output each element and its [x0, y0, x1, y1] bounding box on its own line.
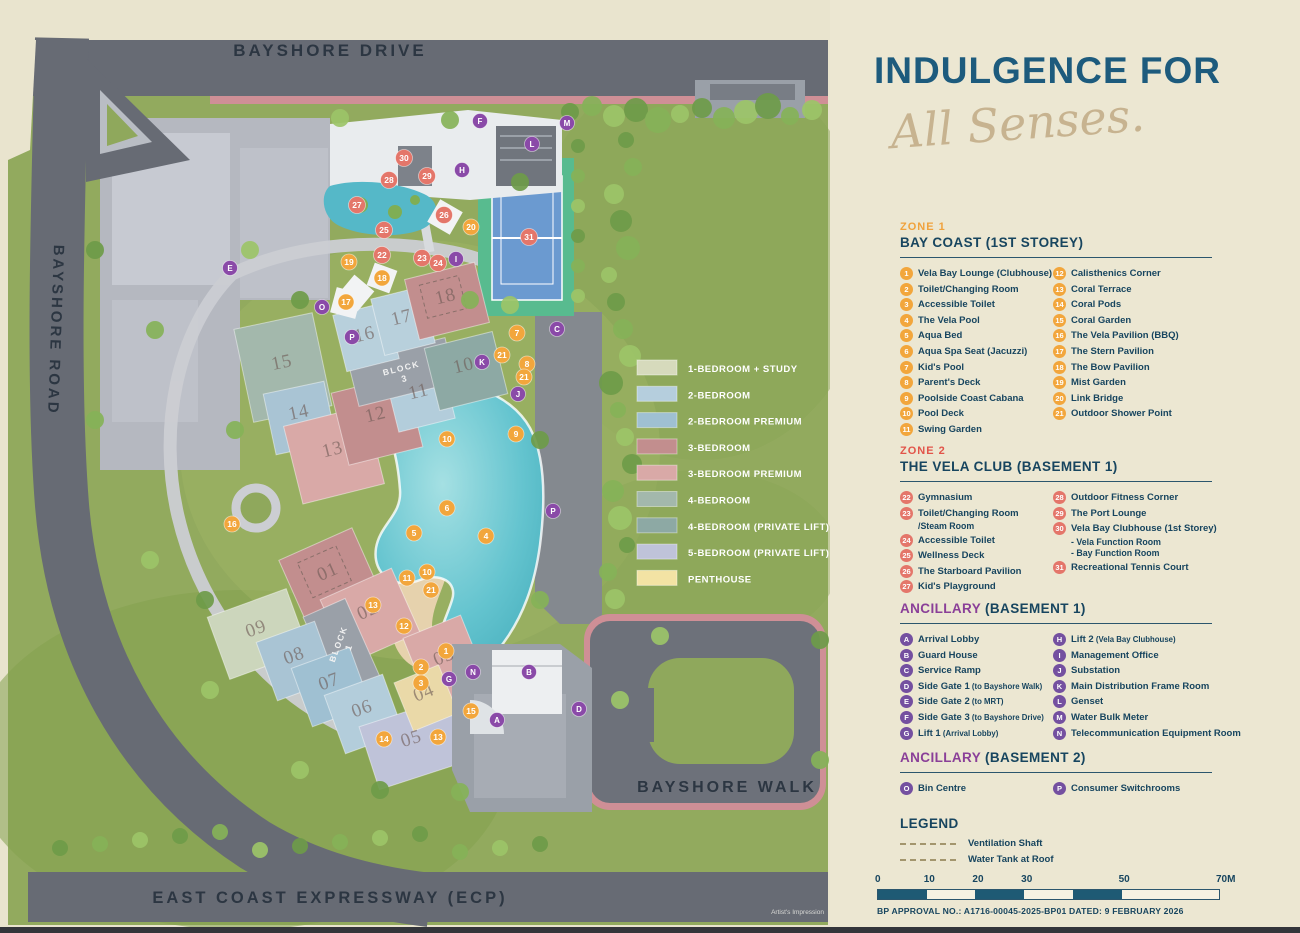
marker-badge: J — [1053, 664, 1066, 677]
legend-item-4: 4The Vela Pool — [900, 315, 1053, 327]
dashed-line-swatch — [900, 859, 956, 861]
item-label: Aqua Bed — [918, 330, 962, 341]
marker-badge: K — [1053, 680, 1066, 693]
svg-text:22: 22 — [377, 250, 387, 260]
map-marker-ancillary-I: I — [449, 252, 464, 267]
map-marker-zone1-12: 12 — [396, 618, 412, 634]
svg-text:21: 21 — [426, 585, 436, 595]
scale-tick-70M: 70M — [1216, 874, 1235, 885]
legend-item-A: AArrival Lobby — [900, 634, 1053, 646]
svg-text:14: 14 — [379, 734, 389, 744]
marker-badge: 20 — [1053, 392, 1066, 405]
item-label: Vela Bay Lounge (Clubhouse) — [918, 268, 1052, 279]
marker-badge: 15 — [1053, 314, 1066, 327]
legend-item-K: KMain Distribution Frame Room — [1053, 681, 1296, 693]
marker-badge: P — [1053, 782, 1066, 795]
site-plan-map: 1-BEDROOM + STUDY2-BEDROOM2-BEDROOM PREM… — [0, 0, 830, 933]
unit-color-swatch — [637, 386, 677, 401]
service-road — [535, 312, 602, 624]
svg-text:12: 12 — [399, 621, 409, 631]
unit-color-swatch — [637, 439, 677, 454]
svg-text:H: H — [459, 166, 465, 175]
legend-row-label: Water Tank at Roof — [968, 854, 1054, 865]
unit-legend-label: 4-BEDROOM — [688, 496, 751, 507]
map-marker-ancillary-J: J — [511, 387, 526, 402]
item-label: The Vela Pool — [918, 315, 980, 326]
unit-color-swatch — [637, 413, 677, 428]
map-marker-zone1-10: 10 — [419, 564, 435, 580]
section-col2: 28Outdoor Fitness Corner29The Port Loung… — [1053, 492, 1296, 597]
item-label: Outdoor Shower Point — [1071, 408, 1172, 419]
legend-row: Water Tank at Roof — [900, 854, 1300, 865]
map-marker-ancillary-A: A — [490, 713, 505, 728]
marker-badge: A — [900, 633, 913, 646]
item-label: Consumer Switchrooms — [1071, 783, 1180, 794]
item-label: Parent's Deck — [918, 377, 980, 388]
marker-badge: 13 — [1053, 283, 1066, 296]
svg-text:13: 13 — [368, 600, 378, 610]
section-col2: PConsumer Switchrooms — [1053, 783, 1296, 799]
svg-text:3: 3 — [419, 678, 424, 688]
map-marker-ancillary-D: D — [572, 702, 587, 717]
scale-bar-block: 01020305070M BP APPROVAL NO.: A1716-0004… — [877, 874, 1297, 916]
item-label: Coral Pods — [1071, 299, 1121, 310]
legend-item-7: 7Kid's Pool — [900, 362, 1053, 374]
screenshot-edge-strip — [0, 927, 1300, 933]
svg-text:7: 7 — [515, 328, 520, 338]
item-label: Accessible Toilet — [918, 535, 995, 546]
legend-item-19: 19Mist Garden — [1053, 377, 1296, 389]
section-title: THE VELA CLUB (BASEMENT 1) — [900, 459, 1300, 474]
item-subline: - Bay Function Room — [1071, 548, 1296, 559]
marker-badge: 28 — [1053, 491, 1066, 504]
legend-item-21: 21Outdoor Shower Point — [1053, 408, 1296, 420]
map-marker-ancillary-F: F — [473, 114, 488, 129]
marker-badge: M — [1053, 711, 1066, 724]
svg-text:30: 30 — [399, 153, 409, 163]
svg-text:21: 21 — [519, 372, 529, 382]
section-col2: HLift 2 (Vela Bay Clubhouse)IManagement … — [1053, 634, 1296, 743]
map-marker-zone1-16: 16 — [224, 516, 240, 532]
legend-item-20: 20Link Bridge — [1053, 393, 1296, 405]
marker-badge: O — [900, 782, 913, 795]
item-subline: /Steam Room — [918, 521, 1053, 532]
svg-text:J: J — [516, 390, 520, 399]
map-marker-zone1-20: 20 — [463, 219, 479, 235]
scale-segment — [878, 890, 927, 899]
roundabout — [236, 488, 276, 528]
marker-badge: 4 — [900, 314, 913, 327]
site-plan-illustration: 1-BEDROOM + STUDY2-BEDROOM2-BEDROOM PREM… — [0, 0, 830, 933]
map-marker-zone2-27: 27 — [349, 197, 366, 214]
item-label: Link Bridge — [1071, 393, 1123, 404]
section-title: ANCILLARY (BASEMENT 2) — [900, 750, 1300, 765]
section-col1: 22Gymnasium23Toilet/Changing Room/Steam … — [900, 492, 1053, 597]
svg-text:P: P — [349, 333, 355, 342]
svg-text:M: M — [564, 119, 571, 128]
item-label: Side Gate 1 (to Bayshore Walk) — [918, 681, 1042, 692]
map-marker-zone1-1: 1 — [438, 643, 454, 659]
svg-text:24: 24 — [433, 258, 443, 268]
svg-text:17: 17 — [341, 297, 351, 307]
svg-text:11: 11 — [403, 573, 412, 583]
item-label: Coral Terrace — [1071, 284, 1132, 295]
marker-badge: 6 — [900, 345, 913, 358]
legend-item-18: 18The Bow Pavilion — [1053, 362, 1296, 374]
marker-badge: 16 — [1053, 329, 1066, 342]
legend-item-G: GLift 1 (Arrival Lobby) — [900, 728, 1053, 740]
svg-text:29: 29 — [422, 171, 432, 181]
item-label: Outdoor Fitness Corner — [1071, 492, 1178, 503]
section-title: ANCILLARY (BASEMENT 1) — [900, 601, 1300, 616]
item-label: Toilet/Changing Room — [918, 508, 1019, 519]
scale-segment — [975, 890, 1024, 899]
map-marker-zone2-29: 29 — [419, 168, 436, 185]
legend-item-6: 6Aqua Spa Seat (Jacuzzi) — [900, 346, 1053, 358]
map-marker-ancillary-N: N — [466, 665, 481, 680]
section-rule — [900, 481, 1212, 482]
marker-badge: 23 — [900, 507, 913, 520]
svg-text:I: I — [455, 255, 457, 264]
legend-item-F: FSide Gate 3 (to Bayshore Drive) — [900, 712, 1053, 724]
svg-text:5: 5 — [412, 528, 417, 538]
svg-text:21: 21 — [497, 350, 507, 360]
svg-text:D: D — [576, 705, 582, 714]
unit-color-swatch — [637, 544, 677, 559]
map-marker-zone1-13: 13 — [430, 729, 446, 745]
legend-item-28: 28Outdoor Fitness Corner — [1053, 492, 1296, 504]
legend-item-10: 10Pool Deck — [900, 408, 1053, 420]
item-label: Swing Garden — [918, 424, 982, 435]
svg-text:25: 25 — [379, 225, 389, 235]
svg-text:4: 4 — [484, 531, 489, 541]
item-label: Accessible Toilet — [918, 299, 995, 310]
marker-badge: 24 — [900, 534, 913, 547]
map-marker-ancillary-P: P — [546, 504, 561, 519]
item-label: Gymnasium — [918, 492, 972, 503]
marker-badge: F — [900, 711, 913, 724]
legend-item-J: JSubstation — [1053, 665, 1296, 677]
map-marker-zone1-4: 4 — [478, 528, 494, 544]
item-label: Bin Centre — [918, 783, 966, 794]
section-rule — [900, 257, 1212, 258]
legend-item-1: 1Vela Bay Lounge (Clubhouse) — [900, 268, 1053, 280]
item-label: Water Bulk Meter — [1071, 712, 1148, 723]
marker-badge: 17 — [1053, 345, 1066, 358]
marker-badge: 9 — [900, 392, 913, 405]
marker-badge: 25 — [900, 549, 913, 562]
map-marker-zone2-22: 22 — [374, 247, 391, 264]
marker-badge: 14 — [1053, 298, 1066, 311]
section-col1: 1Vela Bay Lounge (Clubhouse)2Toilet/Chan… — [900, 268, 1053, 440]
legend-item-D: DSide Gate 1 (to Bayshore Walk) — [900, 681, 1053, 693]
map-marker-zone1-6: 6 — [439, 500, 455, 516]
scale-segment — [1024, 890, 1073, 899]
map-marker-ancillary-O: O — [315, 300, 330, 315]
scale-segment — [1073, 890, 1122, 899]
legend-item-15: 15Coral Garden — [1053, 315, 1296, 327]
unit-number-14: 14 — [286, 400, 311, 425]
map-marker-ancillary-L: L — [525, 137, 540, 152]
legend-item-17: 17The Stern Pavilion — [1053, 346, 1296, 358]
map-marker-zone1-9: 9 — [508, 426, 524, 442]
legend-title: LEGEND — [900, 816, 1300, 831]
marker-badge: 19 — [1053, 376, 1066, 389]
road-label-bayshore-drive: BAYSHORE DRIVE — [233, 41, 426, 60]
unit-legend-label: 3-BEDROOM PREMIUM — [688, 469, 802, 480]
item-label: Wellness Deck — [918, 550, 984, 561]
item-label: Arrival Lobby — [918, 634, 979, 645]
section-tag: ZONE 1 — [900, 221, 1300, 233]
section-title: BAY COAST (1ST STOREY) — [900, 235, 1300, 250]
marker-badge: C — [900, 664, 913, 677]
section-tag: ZONE 2 — [900, 445, 1300, 457]
marker-badge: 31 — [1053, 561, 1066, 574]
scale-tick-10: 10 — [924, 874, 935, 885]
svg-text:27: 27 — [352, 200, 362, 210]
map-marker-ancillary-B: B — [522, 665, 537, 680]
unit-legend-label: 4-BEDROOM (PRIVATE LIFT) — [688, 522, 829, 533]
svg-text:6: 6 — [445, 503, 450, 513]
section-ancillary: ANCILLARY (BASEMENT 1)AArrival LobbyBGua… — [900, 599, 1300, 743]
map-marker-zone2-30: 30 — [396, 150, 413, 167]
item-label: Substation — [1071, 665, 1120, 676]
svg-text:15: 15 — [466, 706, 476, 716]
item-label: Kid's Playground — [918, 581, 996, 592]
svg-text:10: 10 — [442, 434, 452, 444]
svg-text:N: N — [470, 668, 476, 677]
legend-item-26: 26The Starboard Pavilion — [900, 566, 1053, 578]
legend-item-23: 23Toilet/Changing Room — [900, 508, 1053, 520]
map-marker-zone1-18: 18 — [374, 270, 390, 286]
legend-item-P: PConsumer Switchrooms — [1053, 783, 1296, 795]
unit-legend-label: 5-BEDROOM (PRIVATE LIFT) — [688, 548, 829, 559]
legend-item-L: LGenset — [1053, 696, 1296, 708]
item-label: Pool Deck — [918, 408, 964, 419]
legend-item-5: 5Aqua Bed — [900, 330, 1053, 342]
section-rule — [900, 772, 1212, 773]
unit-legend-label: 2-BEDROOM — [688, 390, 751, 401]
map-marker-ancillary-C: C — [550, 322, 565, 337]
svg-text:20: 20 — [466, 222, 476, 232]
scale-tick-20: 20 — [972, 874, 983, 885]
legend-item-B: BGuard House — [900, 650, 1053, 662]
map-marker-ancillary-G: G — [442, 672, 457, 687]
map-marker-zone2-28: 28 — [381, 172, 398, 189]
svg-text:K: K — [479, 358, 485, 367]
scale-bar — [877, 889, 1220, 900]
marker-badge: 3 — [900, 298, 913, 311]
svg-text:F: F — [478, 117, 483, 126]
svg-text:L: L — [530, 140, 535, 149]
map-marker-zone1-19: 19 — [341, 254, 357, 270]
marker-badge: 21 — [1053, 407, 1066, 420]
marker-badge: 22 — [900, 491, 913, 504]
legend-item-2: 2Toilet/Changing Room — [900, 284, 1053, 296]
item-label: Aqua Spa Seat (Jacuzzi) — [918, 346, 1027, 357]
item-label: Lift 2 (Vela Bay Clubhouse) — [1071, 634, 1176, 645]
marker-badge: 10 — [900, 407, 913, 420]
unit-legend-label: 1-BEDROOM + STUDY — [688, 364, 798, 375]
map-marker-zone1-5: 5 — [406, 525, 422, 541]
svg-text:23: 23 — [417, 253, 427, 263]
item-subline: - Vela Function Room — [1071, 537, 1296, 548]
item-label: Coral Garden — [1071, 315, 1131, 326]
marker-badge: E — [900, 695, 913, 708]
road-label-bayshore-walk: BAYSHORE WALK — [637, 779, 817, 796]
svg-text:9: 9 — [514, 429, 519, 439]
legend-item-16: 16The Vela Pavilion (BBQ) — [1053, 330, 1296, 342]
item-label: Telecommunication Equipment Room — [1071, 728, 1241, 739]
legend-item-3: 3Accessible Toilet — [900, 299, 1053, 311]
svg-text:8: 8 — [525, 359, 530, 369]
item-label: Lift 1 (Arrival Lobby) — [918, 728, 998, 739]
marker-badge: B — [900, 649, 913, 662]
map-marker-zone1-21: 21 — [516, 369, 532, 385]
map-marker-zone1-13: 13 — [365, 597, 381, 613]
legend-item-E: ESide Gate 2 (to MRT) — [900, 696, 1053, 708]
section-col2: 12Calisthenics Corner13Coral Terrace14Co… — [1053, 268, 1296, 440]
scale-labels: 01020305070M — [877, 874, 1297, 886]
section-zone-2: ZONE 2THE VELA CLUB (BASEMENT 1)22Gymnas… — [900, 445, 1300, 597]
unit-color-swatch — [637, 360, 677, 375]
legend-row-label: Ventilation Shaft — [968, 838, 1042, 849]
marker-badge: 18 — [1053, 361, 1066, 374]
unit-legend-label: 3-BEDROOM — [688, 443, 751, 454]
legend-item-C: CService Ramp — [900, 665, 1053, 677]
section-col1: OBin Centre — [900, 783, 1053, 799]
legend-panel: INDULGENCE FOR All Senses. ZONE 1BAY COA… — [830, 0, 1300, 933]
svg-text:E: E — [227, 264, 233, 273]
svg-text:10: 10 — [422, 567, 432, 577]
item-label: The Port Lounge — [1071, 508, 1146, 519]
unit-color-swatch — [637, 518, 677, 533]
item-label: Side Gate 3 (to Bayshore Drive) — [918, 712, 1044, 723]
legend-item-22: 22Gymnasium — [900, 492, 1053, 504]
legend-item-31: 31Recreational Tennis Court — [1053, 562, 1296, 574]
bp-approval-text: BP APPROVAL NO.: A1716-00045-2025-BP01 D… — [877, 906, 1297, 916]
map-marker-zone1-15: 15 — [463, 703, 479, 719]
item-label: Guard House — [918, 650, 978, 661]
scale-tick-0: 0 — [875, 874, 881, 885]
item-label: The Vela Pavilion (BBQ) — [1071, 330, 1179, 341]
legend-item-24: 24Accessible Toilet — [900, 535, 1053, 547]
item-label: The Bow Pavilion — [1071, 362, 1150, 373]
unit-number-15: 15 — [269, 350, 294, 375]
marker-badge: 1 — [900, 267, 913, 280]
map-marker-zone1-14: 14 — [376, 731, 392, 747]
legend-item-12: 12Calisthenics Corner — [1053, 268, 1296, 280]
road-label-east-coast-expressway-ecp-: EAST COAST EXPRESSWAY (ECP) — [152, 889, 507, 907]
map-marker-ancillary-E: E — [223, 261, 238, 276]
item-label: Calisthenics Corner — [1071, 268, 1161, 279]
scale-segment — [1122, 890, 1219, 899]
section-col1: AArrival LobbyBGuard HouseCService RampD… — [900, 634, 1053, 743]
map-marker-zone1-17: 17 — [338, 294, 354, 310]
legend-item-14: 14Coral Pods — [1053, 299, 1296, 311]
svg-text:16: 16 — [227, 519, 237, 529]
marker-badge: 2 — [900, 283, 913, 296]
map-marker-ancillary-P: P — [345, 330, 360, 345]
unit-color-swatch — [637, 465, 677, 480]
legend-item-I: IManagement Office — [1053, 650, 1296, 662]
scale-tick-30: 30 — [1021, 874, 1032, 885]
marker-badge: 7 — [900, 361, 913, 374]
marker-badge: 5 — [900, 329, 913, 342]
svg-text:31: 31 — [524, 232, 534, 242]
svg-text:26: 26 — [439, 210, 449, 220]
item-label: Poolside Coast Cabana — [918, 393, 1024, 404]
section-zone-1: ZONE 1BAY COAST (1ST STOREY)1Vela Bay Lo… — [900, 221, 1300, 440]
legend-item-8: 8Parent's Deck — [900, 377, 1053, 389]
item-label: Genset — [1071, 696, 1103, 707]
item-label: Vela Bay Clubhouse (1st Storey) — [1071, 523, 1217, 534]
marker-badge: 27 — [900, 580, 913, 593]
map-marker-zone1-10: 10 — [439, 431, 455, 447]
map-marker-zone2-26: 26 — [436, 207, 453, 224]
section-ancillary: ANCILLARY (BASEMENT 2)OBin CentrePConsum… — [900, 748, 1300, 799]
map-marker-zone1-2: 2 — [413, 659, 429, 675]
legend-item-25: 25Wellness Deck — [900, 550, 1053, 562]
marker-badge: 29 — [1053, 507, 1066, 520]
svg-text:13: 13 — [433, 732, 443, 742]
map-marker-zone2-31: 31 — [521, 229, 538, 246]
svg-text:18: 18 — [377, 273, 387, 283]
marker-badge: 12 — [1053, 267, 1066, 280]
legend-item-M: MWater Bulk Meter — [1053, 712, 1296, 724]
map-marker-ancillary-K: K — [475, 355, 490, 370]
item-label: Mist Garden — [1071, 377, 1126, 388]
legend-section: LEGEND Ventilation ShaftWater Tank at Ro… — [900, 814, 1300, 870]
scale-segment — [927, 890, 976, 899]
map-marker-zone1-21: 21 — [494, 347, 510, 363]
section-rule — [900, 623, 1212, 624]
legend-item-13: 13Coral Terrace — [1053, 284, 1296, 296]
marker-badge: 11 — [900, 423, 913, 436]
item-label: Service Ramp — [918, 665, 981, 676]
map-marker-zone2-24: 24 — [430, 255, 447, 272]
svg-text:C: C — [554, 325, 560, 334]
legend-item-11: 11Swing Garden — [900, 424, 1053, 436]
svg-text:P: P — [550, 507, 556, 516]
map-marker-ancillary-H: H — [455, 163, 470, 178]
svg-text:B: B — [526, 668, 532, 677]
map-marker-ancillary-M: M — [560, 116, 575, 131]
unit-legend-label: PENTHOUSE — [688, 574, 752, 585]
svg-text:G: G — [446, 675, 452, 684]
svg-text:1: 1 — [444, 646, 449, 656]
legend-item-27: 27Kid's Playground — [900, 581, 1053, 593]
marker-badge: N — [1053, 727, 1066, 740]
unit-color-swatch — [637, 570, 677, 585]
legend-item-30: 30Vela Bay Clubhouse (1st Storey) — [1053, 523, 1296, 535]
legend-row: Ventilation Shaft — [900, 838, 1300, 849]
svg-text:2: 2 — [419, 662, 424, 672]
map-marker-zone1-3: 3 — [413, 675, 429, 691]
dashed-line-swatch — [900, 843, 956, 845]
unit-color-swatch — [637, 492, 677, 507]
marker-badge: I — [1053, 649, 1066, 662]
marker-badge: H — [1053, 633, 1066, 646]
svg-text:28: 28 — [384, 175, 394, 185]
marker-badge: L — [1053, 695, 1066, 708]
item-label: Main Distribution Frame Room — [1071, 681, 1209, 692]
item-label: Recreational Tennis Court — [1071, 562, 1189, 573]
scale-tick-50: 50 — [1119, 874, 1130, 885]
legend-item-29: 29The Port Lounge — [1053, 508, 1296, 520]
item-label: Management Office — [1071, 650, 1159, 661]
svg-text:O: O — [319, 303, 325, 312]
